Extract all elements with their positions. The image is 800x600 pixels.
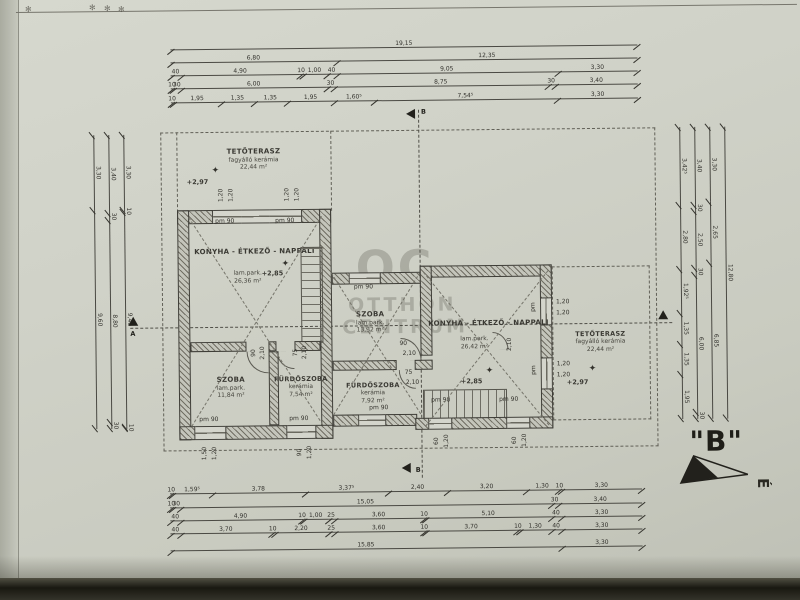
dim-value: 3,60 — [372, 525, 385, 531]
level-value: +2,97 — [187, 178, 209, 186]
dim-segment: 9,60 — [91, 210, 104, 429]
dim-segment: 5,10 — [425, 509, 551, 521]
dim-segment: 2,50 — [692, 211, 704, 268]
dim-value: 1,35 — [231, 96, 244, 102]
dim-value: 1,92⁵ — [682, 283, 688, 299]
opening-width: 1,20 — [293, 185, 300, 205]
dim-segment: 1,35 — [678, 313, 689, 344]
dim-col-right-2: 3,40302,50306,0030 — [691, 127, 705, 419]
door-size: 2,10 — [406, 379, 419, 386]
dim-segment: 3,30 — [561, 521, 642, 533]
dim-segment: 1,00 — [302, 67, 327, 78]
dim-value: 6,00 — [247, 81, 260, 87]
north-label: É — [754, 478, 772, 488]
level-value: +2,85 — [262, 269, 284, 277]
opening-width: 1,20 — [217, 185, 224, 205]
opening-width: 1,20 — [306, 442, 313, 462]
window — [195, 426, 225, 440]
dim-value: 2,80 — [681, 230, 687, 243]
opening-width: 1,20 — [521, 430, 528, 450]
door-size: 75 — [405, 369, 413, 376]
level-marker-icon: ✦ — [486, 366, 494, 376]
dim-segment: 3,40 — [558, 495, 642, 507]
dim-value: 1,95 — [304, 95, 317, 101]
wall — [451, 417, 507, 430]
door-size: 2,10 — [259, 343, 266, 363]
parapet-label: pm — [529, 297, 536, 317]
room-label-living-right: KONYHA - ÉTKEZŐ - NAPPALI — [428, 318, 548, 328]
dim-value: 3,20 — [480, 484, 493, 490]
wall — [179, 426, 195, 440]
window — [541, 358, 553, 388]
dim-value: 3,70 — [219, 527, 232, 533]
wall — [540, 324, 552, 358]
registration-mark-icon: ✻ — [25, 5, 32, 14]
dim-segment: 1,30 — [526, 482, 558, 493]
dim-value: 7,54⁵ — [457, 93, 473, 99]
parapet-label: pm 90 — [354, 283, 373, 290]
dim-value: 30 — [112, 422, 118, 430]
wall — [540, 264, 552, 298]
dim-segment: 8,80 — [106, 220, 119, 422]
wall — [420, 264, 552, 277]
room-label-bath-left: FÜRDŐSZOBA kerámia 7,54 m² — [273, 375, 329, 399]
dim-value: 3,40 — [110, 167, 116, 180]
section-label-b-top: B — [421, 108, 426, 116]
opening-width: 1,50 — [201, 444, 208, 464]
dim-segment: 2,65 — [707, 202, 719, 263]
dim-value: 3,37⁵ — [338, 485, 354, 491]
section-arrow-a-left-icon — [128, 317, 138, 326]
dim-segment: 30 — [694, 412, 705, 419]
dim-value: 4,90 — [234, 514, 247, 520]
page-bottom-shadow — [0, 556, 800, 578]
dim-segment: 3,37⁵ — [305, 484, 388, 496]
paper-top-line — [16, 4, 797, 13]
wall — [529, 416, 553, 428]
dim-segment: 1,35 — [254, 94, 287, 105]
room-label-bedroom-left: SZOBA lam.park. 11,84 m² — [196, 375, 266, 399]
parapet-label: pm 90 — [499, 396, 518, 403]
dim-segment: 6,00 — [693, 275, 705, 412]
wall — [420, 266, 433, 356]
dim-segment: 3,60 — [334, 511, 423, 523]
terrace-door — [241, 209, 269, 223]
dim-value: 3,70 — [464, 524, 477, 530]
window — [287, 425, 315, 439]
dim-segment: 3,40 — [691, 127, 703, 205]
dim-col-left-1: 3,309,60 — [90, 135, 104, 429]
dim-value: 3,78 — [252, 486, 265, 492]
dim-value: 3,60 — [372, 512, 385, 518]
dim-value: 1,59⁵ — [184, 487, 200, 493]
dim-value: 1,35 — [682, 322, 688, 335]
dim-value: 9,60 — [96, 313, 102, 326]
dim-segment: 1,30 — [519, 522, 551, 533]
dim-value: 12,35 — [478, 53, 495, 59]
door-size: 2,10 — [403, 350, 416, 357]
dim-value: 40 — [552, 523, 560, 529]
dim-value: 12,80 — [727, 264, 733, 281]
dim-value: 1,00 — [309, 513, 322, 519]
dim-value: 1,95 — [190, 96, 203, 102]
dim-value: 3,30 — [711, 158, 717, 171]
dim-value: 8,75 — [434, 79, 447, 85]
parapet-label: pm 90 — [275, 217, 294, 224]
dim-segment: 3,40 — [105, 135, 117, 213]
wall — [177, 210, 191, 440]
opening-width: 1,20 — [227, 185, 234, 205]
dim-segment: 1,35 — [221, 95, 254, 106]
dim-value: 1,35 — [264, 95, 277, 101]
dim-value: 6,00 — [697, 337, 703, 350]
dim-value: 3,30 — [595, 523, 608, 529]
registration-mark-icon: ✻ — [104, 4, 111, 13]
dim-segment: 2,40 — [388, 484, 447, 496]
dim-segment: 2,20 — [274, 525, 328, 537]
level-marker-icon: ✦ — [589, 364, 597, 374]
section-arrow-b-bottom-icon — [402, 463, 411, 473]
dim-segment: 3,78 — [212, 485, 305, 497]
dim-segment: 3,30 — [561, 508, 642, 520]
dim-segment: 6,80 — [170, 54, 336, 67]
dim-segment: 3,70 — [180, 525, 271, 537]
dim-segment: 1,59⁵ — [172, 486, 211, 497]
dim-value: 3,30 — [595, 483, 608, 489]
dim-value: 4,90 — [233, 69, 246, 75]
drawing-area: ✻ ✻ ✻ ✻ OC OTTHON CENTRUM 19,15 6,8012,3… — [0, 0, 800, 600]
dim-segment: 1,92⁵ — [678, 269, 689, 313]
dim-value: 3,30 — [591, 65, 604, 71]
dim-value: 40 — [171, 514, 179, 520]
door-size: 2,10 — [506, 334, 513, 354]
dim-value: 1,35 — [683, 352, 689, 365]
dim-col-right-4: 12,80 — [721, 127, 735, 419]
dim-value: 1,30 — [528, 524, 541, 530]
dim-segment: 1,60⁵ — [334, 93, 373, 104]
door-size: 2,10 — [301, 342, 308, 362]
dim-col-left-3: 3,30109,4010 — [120, 135, 134, 429]
registration-mark-icon: ✻ — [89, 3, 96, 12]
dim-col-right-1: 3,42⁵2,801,92⁵1,351,351,95 — [676, 127, 690, 419]
dim-segment: 3,60 — [334, 524, 423, 536]
dim-value: 8,80 — [111, 314, 117, 327]
dim-segment: 3,30 — [557, 90, 638, 102]
parapet-label: pm 90 — [289, 415, 308, 422]
dim-col-left-2: 3,40308,8030 — [105, 135, 119, 429]
dim-value: 1,00 — [308, 68, 321, 74]
dim-row-top-4: 10306,00308,75303,40 — [171, 76, 638, 92]
dim-value: 40 — [171, 527, 179, 533]
dim-segment: 1,35 — [678, 344, 689, 375]
section-label-a: A — [130, 330, 135, 338]
dim-segment: 3,30 — [90, 135, 102, 210]
dim-segment: 15,85 — [171, 539, 562, 554]
dim-value: 2,65 — [711, 225, 717, 238]
dim-value: 3,40 — [590, 78, 603, 84]
dim-segment: 3,30 — [561, 481, 642, 493]
door-size: 75 — [292, 343, 299, 363]
level-marker-icon: ✦ — [212, 166, 220, 176]
dim-segment: 3,30 — [557, 63, 638, 75]
window — [507, 417, 529, 429]
wall — [333, 414, 359, 426]
dim-segment: 1,95 — [679, 374, 690, 419]
parapet-label: pm 90 — [215, 218, 234, 225]
dim-value: 3,30 — [591, 92, 604, 98]
dim-value: 3,30 — [95, 166, 101, 179]
dim-row-bottom-4: 403,70102,20253,60103,70101,30403,30 — [170, 521, 642, 537]
window — [359, 414, 385, 426]
opening-width: 60 — [511, 430, 518, 450]
level-value: +2,85 — [461, 377, 483, 385]
opening-width: 1,20 — [283, 185, 290, 205]
dim-value: 3,30 — [595, 540, 608, 546]
dim-value: 10 — [127, 424, 133, 432]
parapet-label: pm 90 — [199, 416, 218, 423]
door-size: 90 — [399, 340, 407, 347]
dim-row-bottom-5: 15,853,30 — [171, 538, 643, 554]
dim-segment: 1,00 — [303, 512, 328, 523]
dim-value: 9,05 — [440, 66, 453, 72]
parapet-label: pm — [530, 360, 537, 380]
dim-value: 1,95 — [683, 390, 689, 403]
opening-width: 90 — [296, 443, 303, 463]
dim-value: 3,40 — [696, 159, 702, 172]
dim-value: 3,30 — [595, 510, 608, 516]
dim-segment: 1,95 — [173, 95, 221, 106]
dim-row-top-5: 101,951,351,351,951,60⁵7,54⁵3,30 — [171, 90, 638, 106]
dim-segment: 12,80 — [721, 127, 735, 419]
dim-col-right-3: 3,302,656,85 — [706, 127, 720, 419]
registration-mark-icon: ✻ — [118, 5, 125, 14]
dim-segment: 3,20 — [447, 483, 526, 495]
level-value: +2,97 — [567, 378, 589, 386]
dim-value: 3,42⁵ — [681, 158, 687, 174]
dim-row-bottom-1: 101,59⁵3,783,37⁵2,403,201,30103,30 — [170, 481, 642, 497]
dim-value: 30 — [698, 412, 704, 420]
dim-value: 3,40 — [593, 497, 606, 503]
title-block-strip: "A" és "B" lakóépület építésének bejelen… — [0, 578, 800, 600]
dim-value: 40 — [552, 510, 560, 516]
dim-segment: 7,54⁵ — [373, 91, 557, 104]
dim-value: 6,80 — [247, 55, 260, 61]
dim-segment: 3,30 — [120, 135, 132, 210]
window — [429, 417, 451, 429]
dim-segment: 8,75 — [334, 77, 547, 90]
wall — [415, 360, 433, 370]
dim-segment: 30 — [108, 422, 119, 429]
staircase-right — [423, 389, 507, 420]
parapet-label: pm 90 — [369, 404, 388, 411]
dim-segment: 4,90 — [180, 67, 300, 79]
room-label-terrace-right: TETŐTERASZ fagyálló kerámia 22,44 m² — [558, 329, 642, 353]
dim-value: 3,30 — [125, 166, 131, 179]
section-arrow-b-top-icon — [406, 109, 415, 119]
dim-segment: 3,30 — [561, 538, 642, 550]
opening-width: 1,20 — [443, 431, 450, 451]
dim-value: 19,15 — [395, 41, 412, 47]
dim-value: 5,10 — [481, 511, 494, 517]
dim-value: 15,85 — [357, 542, 374, 548]
dim-value: 2,40 — [411, 485, 424, 491]
dim-value: 2,50 — [696, 233, 702, 246]
dim-value: 1,60⁵ — [346, 94, 362, 100]
dim-segment: 6,00 — [180, 80, 326, 93]
dim-segment: 4,90 — [180, 512, 301, 524]
opening-width: 60 — [433, 431, 440, 451]
dim-segment: 12,35 — [336, 51, 637, 65]
north-arrow-icon — [678, 452, 756, 489]
opening-width: 1,20 — [211, 443, 218, 463]
dim-value: 2,20 — [294, 526, 307, 532]
dim-segment: 3,42⁵ — [676, 127, 688, 205]
dim-segment: 3,30 — [706, 127, 718, 202]
staircase-left — [300, 247, 323, 343]
floor-plan-sheet: ✻ ✻ ✻ ✻ OC OTTHON CENTRUM 19,15 6,8012,3… — [0, 0, 800, 600]
dim-value: 40 — [328, 68, 336, 74]
dim-value: 6,85 — [712, 334, 718, 347]
section-arrow-a-right-icon — [658, 310, 668, 319]
dim-value: 1,30 — [535, 483, 548, 489]
door-size: 90 — [250, 343, 257, 363]
dim-segment: 9,05 — [336, 64, 557, 77]
dim-value: 15,05 — [357, 499, 374, 505]
dim-segment: 3,70 — [425, 523, 516, 535]
dim-value: 40 — [172, 69, 180, 75]
dim-segment: 2,80 — [677, 205, 689, 269]
wall — [225, 425, 287, 440]
section-label-b-bottom: B — [416, 466, 421, 474]
dim-segment: 3,40 — [555, 76, 638, 88]
wall — [385, 414, 417, 426]
wall — [315, 425, 333, 439]
dim-segment: 6,85 — [708, 262, 721, 418]
dim-segment: 1,95 — [287, 94, 335, 105]
dim-segment: 10 — [123, 427, 134, 429]
